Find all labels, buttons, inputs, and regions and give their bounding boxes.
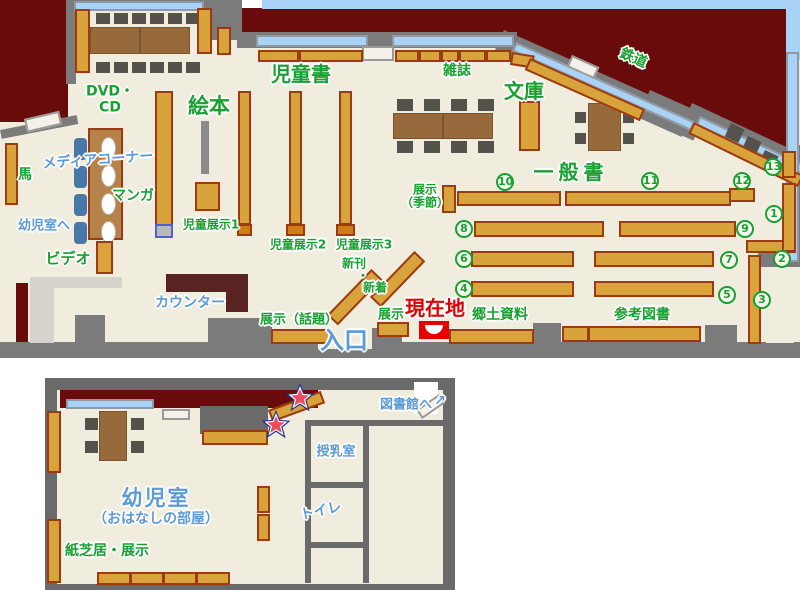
outside-area <box>0 0 68 122</box>
label-manga: マンガ <box>112 189 154 205</box>
shelf-number-1: 1 <box>765 205 783 223</box>
shelf-end <box>237 224 252 236</box>
bookshelf <box>257 486 270 513</box>
annex-wall <box>305 542 369 548</box>
chair <box>131 418 144 430</box>
label-to-library: 図書館へ <box>380 399 432 414</box>
bookshelf <box>130 572 164 585</box>
shelf-number-12: 12 <box>733 172 751 190</box>
chair <box>478 99 494 111</box>
chair <box>74 194 87 216</box>
chair <box>451 99 467 111</box>
bookshelf <box>782 151 796 178</box>
chair <box>96 13 110 24</box>
chair <box>168 62 182 73</box>
window <box>392 35 514 47</box>
bookshelf <box>519 101 540 151</box>
door <box>162 409 190 420</box>
chair <box>132 62 146 73</box>
label-bunko: 文庫 <box>504 80 544 102</box>
label-kamishibai-display: 紙芝居・展示 <box>65 544 149 560</box>
label-horse: 馬 <box>18 168 32 184</box>
label-counter: カウンター <box>155 296 225 312</box>
bookshelf <box>782 183 796 252</box>
shelf-end <box>336 224 355 236</box>
bookshelf <box>729 188 755 202</box>
annex-wall <box>363 420 369 583</box>
label-reference-books: 参考図書 <box>614 308 670 324</box>
bookshelf <box>5 143 18 205</box>
table-divider <box>139 28 141 53</box>
table <box>99 411 127 461</box>
shelf-number-9: 9 <box>736 220 754 238</box>
label-you-are-here: 現在地 <box>405 297 465 319</box>
chair <box>96 62 110 73</box>
chair <box>424 141 440 153</box>
shelf-number-5: 5 <box>718 286 736 304</box>
shelf-number-11: 11 <box>641 172 659 190</box>
label-children-books: 児童書 <box>271 63 331 85</box>
label-display: 展示 <box>378 309 404 324</box>
label-magazines: 雑誌 <box>443 64 471 80</box>
bookshelf <box>202 430 268 445</box>
chair <box>397 141 413 153</box>
label-children-display-3: 児童展示3 <box>336 238 392 251</box>
label-children-display-2: 児童展示2 <box>270 238 326 251</box>
chair <box>451 141 467 153</box>
outside-pillar <box>16 283 28 343</box>
shelf-end <box>286 224 305 236</box>
label-display-seasonal: 展示 （季節） <box>401 184 449 211</box>
chair <box>623 133 634 144</box>
chair <box>478 141 494 153</box>
bookshelf <box>395 50 419 62</box>
bookshelf <box>97 572 131 585</box>
bookshelf <box>594 281 714 297</box>
bookshelf <box>197 8 212 54</box>
shelf-number-7: 7 <box>720 251 738 269</box>
wall-pillar <box>533 323 561 343</box>
chair <box>114 13 128 24</box>
bookshelf <box>217 27 231 55</box>
bookshelf <box>565 191 731 206</box>
chair <box>85 418 98 430</box>
exterior-strip <box>262 0 800 9</box>
service-counter <box>226 292 248 312</box>
bookshelf <box>96 241 113 274</box>
shelf-end <box>155 224 173 238</box>
chair <box>132 13 146 24</box>
chair <box>114 62 128 73</box>
bookshelf <box>594 251 714 267</box>
bookshelf <box>449 329 534 344</box>
alcove-floor <box>766 267 794 343</box>
bookshelf <box>299 50 363 62</box>
bookshelf <box>471 281 574 297</box>
bookshelf <box>289 91 302 225</box>
marker-symbol <box>425 325 443 334</box>
chair <box>150 62 164 73</box>
library-floor-map: DVD・ CD 絵本 児童書 雑誌 文庫 鉄道 一般書 メディアコーナー マンガ… <box>0 0 800 590</box>
bookshelf <box>459 50 486 62</box>
chair <box>150 13 164 24</box>
label-video: ビデオ <box>45 251 90 268</box>
bookshelf <box>47 519 61 583</box>
shelf-number-2: 2 <box>773 250 791 268</box>
bookshelf <box>486 50 511 62</box>
to-library-arrow-icon: ↗ <box>434 394 446 410</box>
bookshelf <box>619 221 736 237</box>
bookshelf <box>155 91 173 226</box>
bookshelf <box>196 572 230 585</box>
chair <box>168 13 182 24</box>
chair <box>186 62 200 73</box>
chair <box>575 133 586 144</box>
bookshelf <box>257 514 270 541</box>
bookshelf <box>258 50 299 62</box>
bookshelf <box>163 572 197 585</box>
label-infant-room: 幼児室 <box>122 487 191 511</box>
display-stand <box>195 182 220 211</box>
annex-wall <box>305 482 369 488</box>
bookshelf <box>588 326 701 342</box>
display-shelf <box>377 322 409 337</box>
bookshelf <box>238 91 251 225</box>
label-dvd-cd: DVD・ CD <box>86 84 134 115</box>
chair <box>424 99 440 111</box>
chair <box>85 441 98 453</box>
shelf-number-8: 8 <box>455 220 473 238</box>
bookshelf <box>47 411 61 473</box>
door <box>362 46 394 61</box>
shelf-number-10: 10 <box>496 173 514 191</box>
bookshelf <box>419 50 441 62</box>
window <box>66 399 154 409</box>
annex-wall <box>305 420 445 426</box>
window <box>256 35 368 47</box>
label-picture-books: 絵本 <box>188 95 230 119</box>
bookshelf <box>75 9 90 73</box>
shelf-number-4: 4 <box>455 280 473 298</box>
wall-pillar <box>705 325 737 345</box>
bookshelf <box>474 221 604 237</box>
label-nursing-room: 授乳室 <box>316 446 355 461</box>
you-are-here-marker <box>419 321 449 339</box>
label-storytelling-room: （おはなしの部屋） <box>93 512 219 528</box>
bookshelf <box>457 191 561 206</box>
label-to-infant-room: 幼児室へ <box>18 220 70 235</box>
wall-pillar <box>75 315 105 343</box>
label-children-display-1: 児童展示1 <box>183 218 239 231</box>
corridor <box>30 277 54 343</box>
annex-wall <box>305 420 311 583</box>
label-general-books: 一般書 <box>534 161 609 183</box>
chair <box>131 441 144 453</box>
chair <box>397 99 413 111</box>
chair <box>575 112 586 123</box>
table-divider <box>442 114 444 138</box>
bookshelf <box>471 251 574 267</box>
window <box>74 1 204 11</box>
shelf-number-3: 3 <box>753 291 771 309</box>
label-local-materials: 郷土資料 <box>472 308 528 324</box>
chair <box>74 222 87 244</box>
bookshelf <box>562 326 589 342</box>
display-divider <box>201 121 209 174</box>
exterior-strip <box>786 0 800 60</box>
label-entrance: 入口 <box>320 328 368 355</box>
bookshelf <box>441 50 459 62</box>
service-counter <box>166 274 248 292</box>
bookshelf <box>339 91 352 225</box>
media-monitor <box>101 221 116 243</box>
shelf-number-6: 6 <box>455 250 473 268</box>
label-new-arrivals-3: 新着 <box>363 281 387 294</box>
shelf-number-13: 13 <box>764 158 782 176</box>
